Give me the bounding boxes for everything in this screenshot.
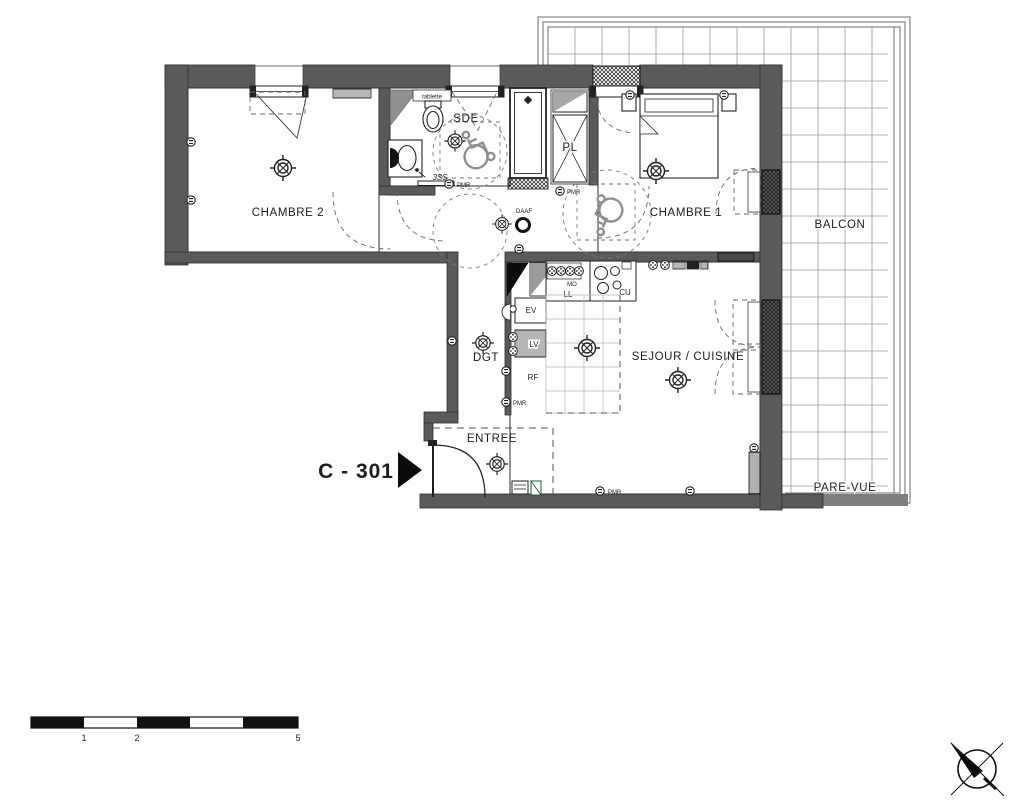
rf-label: RF <box>528 373 539 382</box>
pl-closet <box>551 90 589 184</box>
radiator-right-wall <box>749 452 760 494</box>
window-chambre2 <box>255 66 303 87</box>
ev-label: EV <box>526 306 537 315</box>
shower-icon <box>508 88 548 189</box>
label-dgt: DGT <box>473 352 499 364</box>
floor-plan-drawing: BALCON PARE-VUE <box>0 0 1015 800</box>
lv-label: LV <box>529 340 539 349</box>
label-chambre2: CHAMBRE 2 <box>252 207 325 219</box>
pare-vue-base-bar <box>818 494 908 506</box>
toilet-icon <box>423 101 443 132</box>
radiator-sejour <box>718 253 754 261</box>
window-chambre1 <box>593 66 640 87</box>
radiator-chambre2 <box>333 89 371 98</box>
label-entree: ENTREE <box>467 433 517 445</box>
daaf-label: DAAF <box>516 209 532 215</box>
label-pl: PL <box>562 142 577 154</box>
svg-text:PMR: PMR <box>513 401 527 407</box>
entree-cabinet <box>512 481 528 494</box>
scale-tick-5: 5 <box>295 733 300 743</box>
balcony-door-sejour <box>762 300 780 394</box>
balcony-label: BALCON <box>815 219 866 231</box>
svg-text:PMR: PMR <box>457 183 471 189</box>
floor-plan-page: BALCON PARE-VUE <box>0 0 1015 800</box>
mo-label: MO <box>567 282 577 288</box>
scale-bar: 1 2 5 <box>31 717 301 743</box>
svg-text:PMR: PMR <box>608 490 622 496</box>
pare-vue-label: PARE-VUE <box>814 482 877 494</box>
cu-label: CU <box>619 288 631 297</box>
tablette-label: tablette <box>422 95 442 101</box>
window-sde <box>450 66 500 87</box>
balcony-door-chambre1 <box>762 170 780 214</box>
north-compass-icon <box>950 742 1004 796</box>
label-sde: SDE <box>453 113 478 125</box>
unit-arrow-icon <box>398 452 422 488</box>
svg-text:PMR: PMR <box>567 190 581 196</box>
label-sejour-cuisine: SEJOUR / CUISINE <box>632 351 744 363</box>
scale-tick-1: 1 <box>81 733 86 743</box>
unit-marker: C - 301 <box>318 452 422 488</box>
unit-label: C - 301 <box>318 460 394 483</box>
scale-tick-2: 2 <box>134 733 139 743</box>
label-chambre1: CHAMBRE 1 <box>650 207 723 219</box>
